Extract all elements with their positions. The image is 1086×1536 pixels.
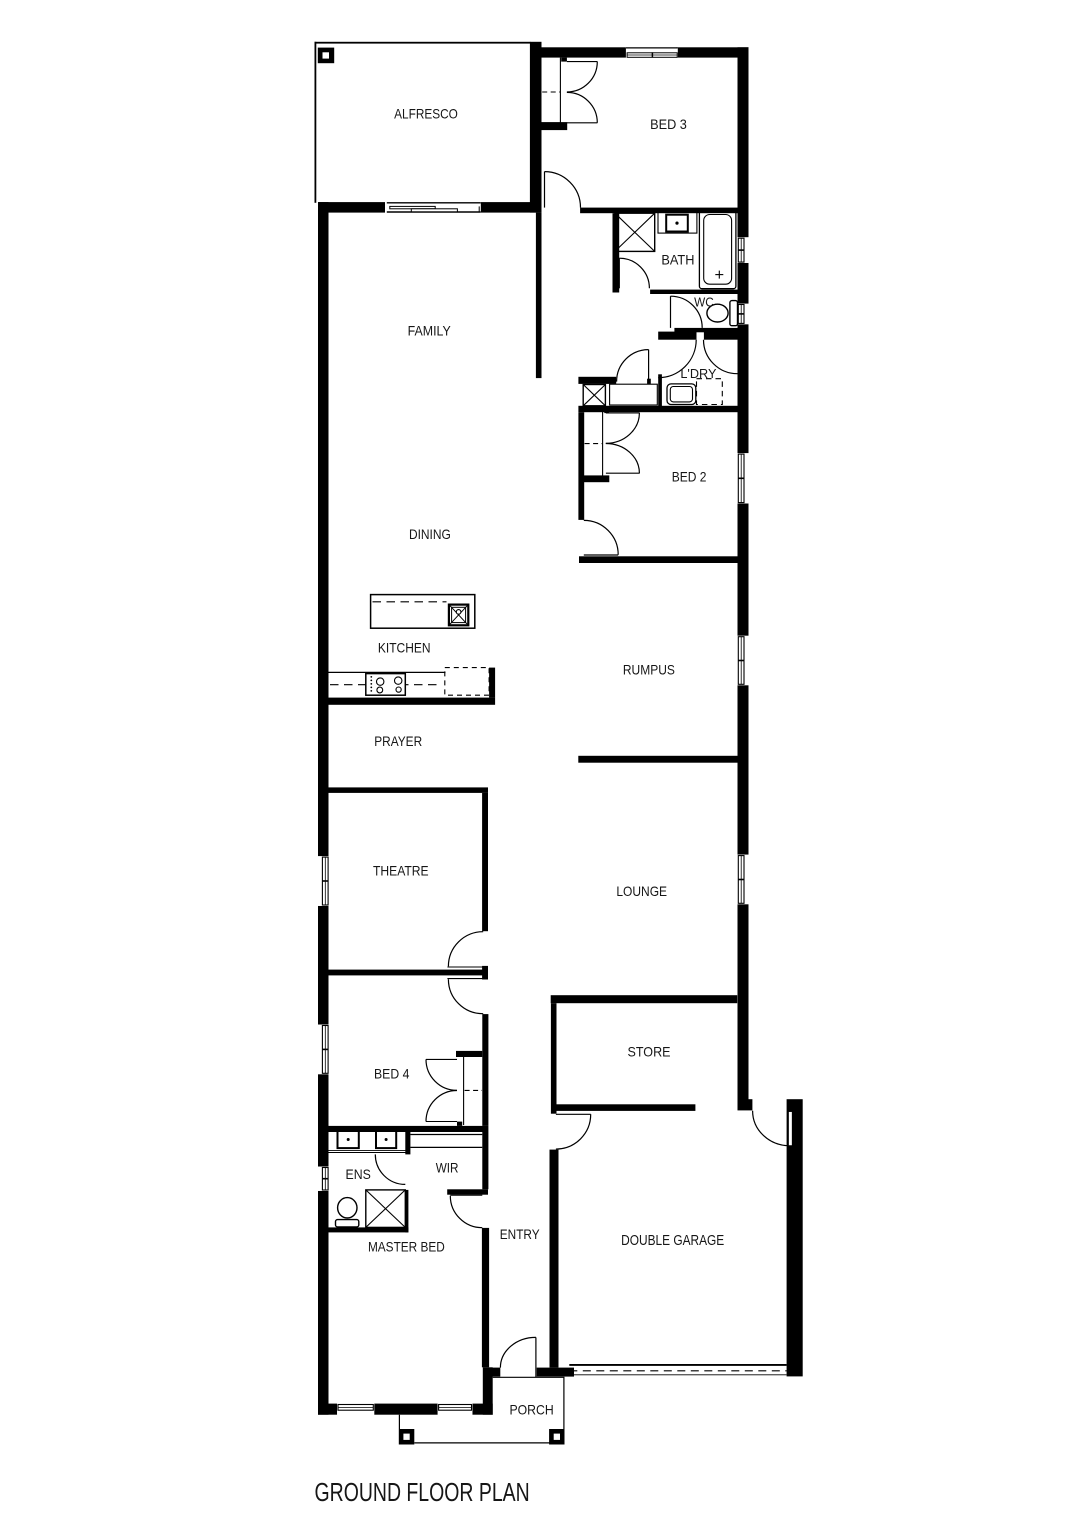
svg-text:BED 3: BED 3 [650,116,687,132]
svg-text:GROUND FLOOR PLAN: GROUND FLOOR PLAN [315,1479,530,1507]
svg-text:DOUBLE GARAGE: DOUBLE GARAGE [621,1232,724,1249]
svg-text:RUMPUS: RUMPUS [623,661,675,677]
svg-text:KITCHEN: KITCHEN [378,639,431,655]
svg-text:PRAYER: PRAYER [374,733,422,749]
svg-text:WC: WC [694,294,714,309]
svg-text:STORE: STORE [628,1043,671,1059]
svg-text:ENTRY: ENTRY [500,1227,540,1242]
svg-text:PORCH: PORCH [510,1402,554,1418]
svg-text:ALFRESCO: ALFRESCO [394,106,458,122]
svg-text:BATH: BATH [661,251,694,267]
svg-text:ENS: ENS [346,1166,371,1182]
svg-text:FAMILY: FAMILY [408,322,452,338]
svg-text:MASTER BED: MASTER BED [368,1239,445,1255]
svg-text:L'DRY: L'DRY [680,366,716,381]
svg-text:BED 4: BED 4 [374,1065,410,1081]
svg-text:BED 2: BED 2 [672,469,707,485]
svg-text:WIR: WIR [436,1159,459,1175]
svg-text:THEATRE: THEATRE [373,863,429,879]
svg-text:DINING: DINING [409,526,451,542]
svg-text:LOUNGE: LOUNGE [616,883,667,899]
